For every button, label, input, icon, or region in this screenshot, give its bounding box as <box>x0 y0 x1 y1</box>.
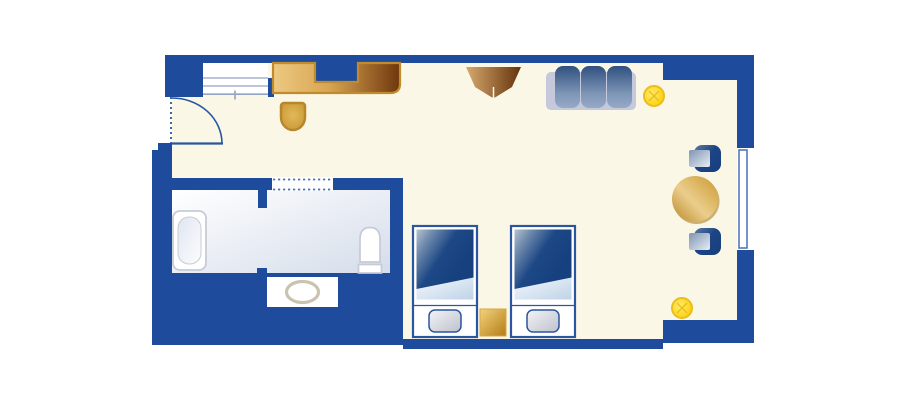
bathtub-inner <box>178 217 201 264</box>
wardrobe-closet <box>203 63 268 100</box>
nightstand <box>480 309 506 336</box>
wall-bath-stub-top <box>258 190 267 208</box>
toilet-tank <box>359 265 382 274</box>
bed-right-pillow <box>527 310 559 332</box>
sofa-cushion-2 <box>581 66 606 108</box>
wall-corner-top-left <box>165 55 203 97</box>
sofa <box>546 66 636 110</box>
floor-plan-page <box>0 0 910 400</box>
wall-left <box>152 150 172 277</box>
wall-right-upper <box>737 63 754 148</box>
sink-basin <box>287 282 319 303</box>
floor-plan <box>0 0 910 400</box>
wall-top <box>165 55 754 63</box>
floor-lamp-bottom <box>672 298 692 318</box>
wall-bath-top-left <box>172 178 272 190</box>
wall-bath-right <box>390 178 403 277</box>
table-chair-top-seat <box>689 150 710 167</box>
twin-bed-right <box>511 226 575 337</box>
bed-left-pillow <box>429 310 461 332</box>
bathtub <box>173 211 206 270</box>
wall-step-top-right <box>663 63 737 80</box>
toilet <box>359 228 382 274</box>
desk-chair <box>281 103 305 130</box>
wall-bath-stub-bottom <box>257 268 267 277</box>
table-top <box>672 176 718 222</box>
twin-bed-left <box>413 226 477 337</box>
sofa-cushion-3 <box>607 66 632 108</box>
toilet-bowl <box>360 228 380 263</box>
wall-pillar-desk <box>315 63 358 82</box>
window-frame <box>739 150 747 248</box>
table-chair-bottom-seat <box>689 233 710 250</box>
wall-step-bottom-right <box>663 320 754 343</box>
sofa-cushion-1 <box>555 66 580 108</box>
floor-lamp-top <box>644 86 664 106</box>
wall-bottom-beds <box>403 339 663 349</box>
